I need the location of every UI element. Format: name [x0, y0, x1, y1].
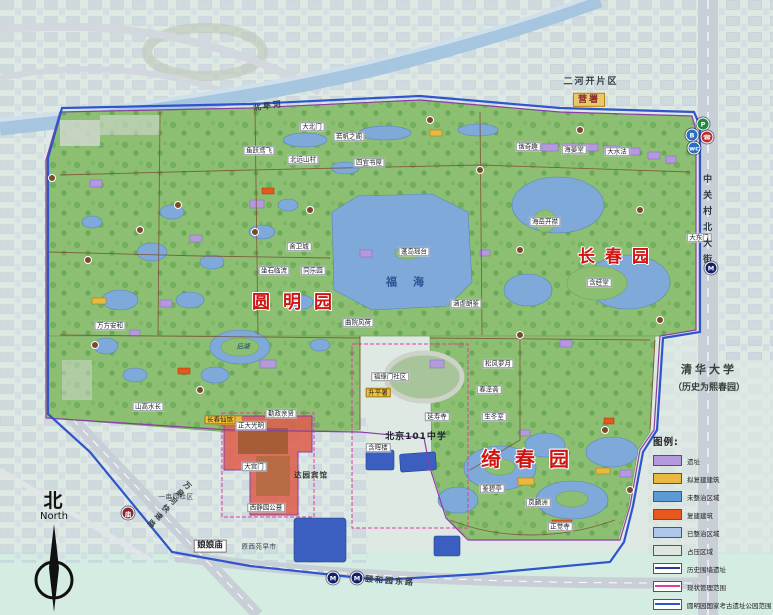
legend-swatch [653, 509, 682, 520]
legend-item: 已整治区域 [653, 527, 771, 538]
legend-label: 拟复建建筑 [687, 474, 720, 484]
legend-label: 遗址 [687, 456, 700, 466]
legend-swatch [653, 581, 682, 592]
legend-title: 图例: [653, 434, 771, 448]
title-yuanmingyuan: 圆明园 [252, 288, 345, 314]
legend-label: 复建建筑 [687, 510, 713, 520]
compass-north-cn: 北 [26, 486, 82, 513]
legend-swatch [653, 455, 682, 466]
legend: 图例: 遗址拟复建建筑未整治区域复建建筑已整治区域占压区域历史围墙遗址现状管理范… [653, 434, 771, 610]
legend-swatch [653, 545, 682, 556]
compass: 北 North [26, 486, 82, 615]
legend-item: 拟复建建筑 [653, 473, 771, 484]
tsinghua-note: 清华大学 （历史为熙春园） [645, 361, 773, 393]
legend-item: 占压区域 [653, 545, 771, 556]
park-map: 大北门若帆之阁北远山村四宜书屋鱼跃鸢飞舍卫城同乐园坐石临流曲院风荷蓬岛瑶台涵虚朗… [0, 0, 773, 615]
title-changchunyuan: 长春园 [578, 242, 659, 267]
legend-swatch [653, 563, 682, 574]
legend-swatch [653, 491, 682, 502]
legend-label: 圆明园国家考古遗址公园范围 [687, 600, 772, 610]
legend-label: 历史围墙遗址 [687, 564, 726, 574]
compass-north-en: North [26, 511, 82, 522]
legend-label: 未整治区域 [687, 492, 720, 502]
legend-swatch [653, 599, 682, 610]
legend-label: 现状管理范围 [687, 582, 726, 592]
legend-swatch [653, 473, 682, 484]
title-qichunyuan: 绮春园 [481, 443, 583, 472]
tsinghua-history: （历史为熙春园） [645, 380, 773, 393]
tsinghua-name: 清华大学 [645, 361, 773, 377]
legend-item: 复建建筑 [653, 509, 771, 520]
legend-item: 遗址 [653, 455, 771, 466]
compass-needle-icon [28, 522, 80, 614]
legend-label: 占压区域 [687, 546, 713, 556]
legend-item: 现状管理范围 [653, 581, 771, 592]
legend-item: 历史围墙遗址 [653, 563, 771, 574]
legend-swatch [653, 527, 682, 538]
legend-item: 圆明园国家考古遗址公园范围 [653, 599, 771, 610]
legend-label: 已整治区域 [687, 528, 720, 538]
legend-item: 未整治区域 [653, 491, 771, 502]
legend-items: 遗址拟复建建筑未整治区域复建建筑已整治区域占压区域历史围墙遗址现状管理范围圆明园… [653, 455, 771, 610]
